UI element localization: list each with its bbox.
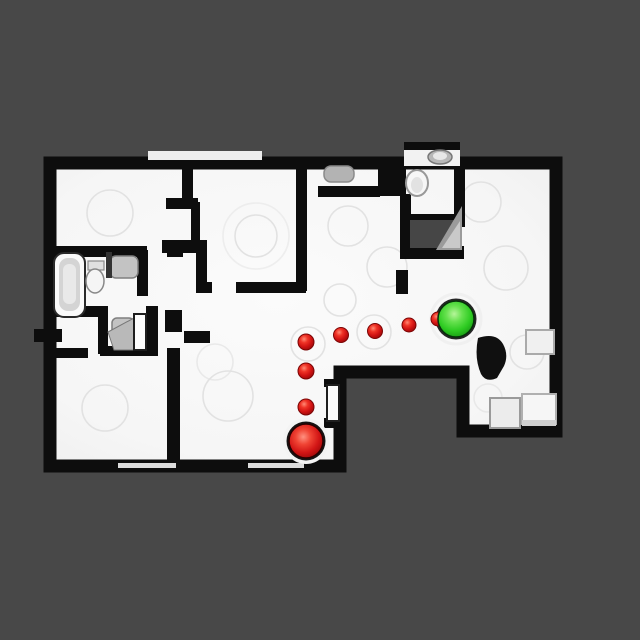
waypoint-dot: [298, 399, 314, 415]
open-door: [324, 379, 342, 428]
waypoint-dot: [368, 324, 383, 339]
wc-door-panel: [134, 314, 146, 350]
wc-room: [108, 314, 146, 350]
start-marker: [289, 424, 323, 458]
waypoint-dot: [298, 334, 314, 350]
entry-step-left: [490, 398, 520, 428]
waypoint-dot: [298, 363, 314, 379]
kitchen-sink: [324, 166, 354, 182]
goal-marker: [438, 301, 474, 337]
door-panel: [327, 385, 339, 421]
waypoint-dot: [334, 328, 349, 343]
floorplan-canvas: [0, 0, 640, 640]
vanity-sink: [110, 256, 138, 278]
entry-step-right: [522, 394, 556, 424]
toilet: [86, 269, 104, 293]
kitchen-counter: [324, 166, 354, 182]
waypoint-dot: [402, 318, 416, 332]
side-table: [526, 330, 554, 354]
scene-viewport[interactable]: [0, 0, 640, 640]
